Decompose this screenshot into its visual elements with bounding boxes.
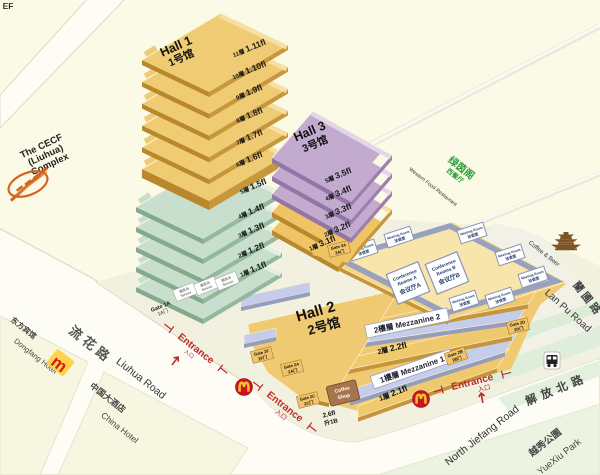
svg-text:EF: EF [3,1,14,11]
